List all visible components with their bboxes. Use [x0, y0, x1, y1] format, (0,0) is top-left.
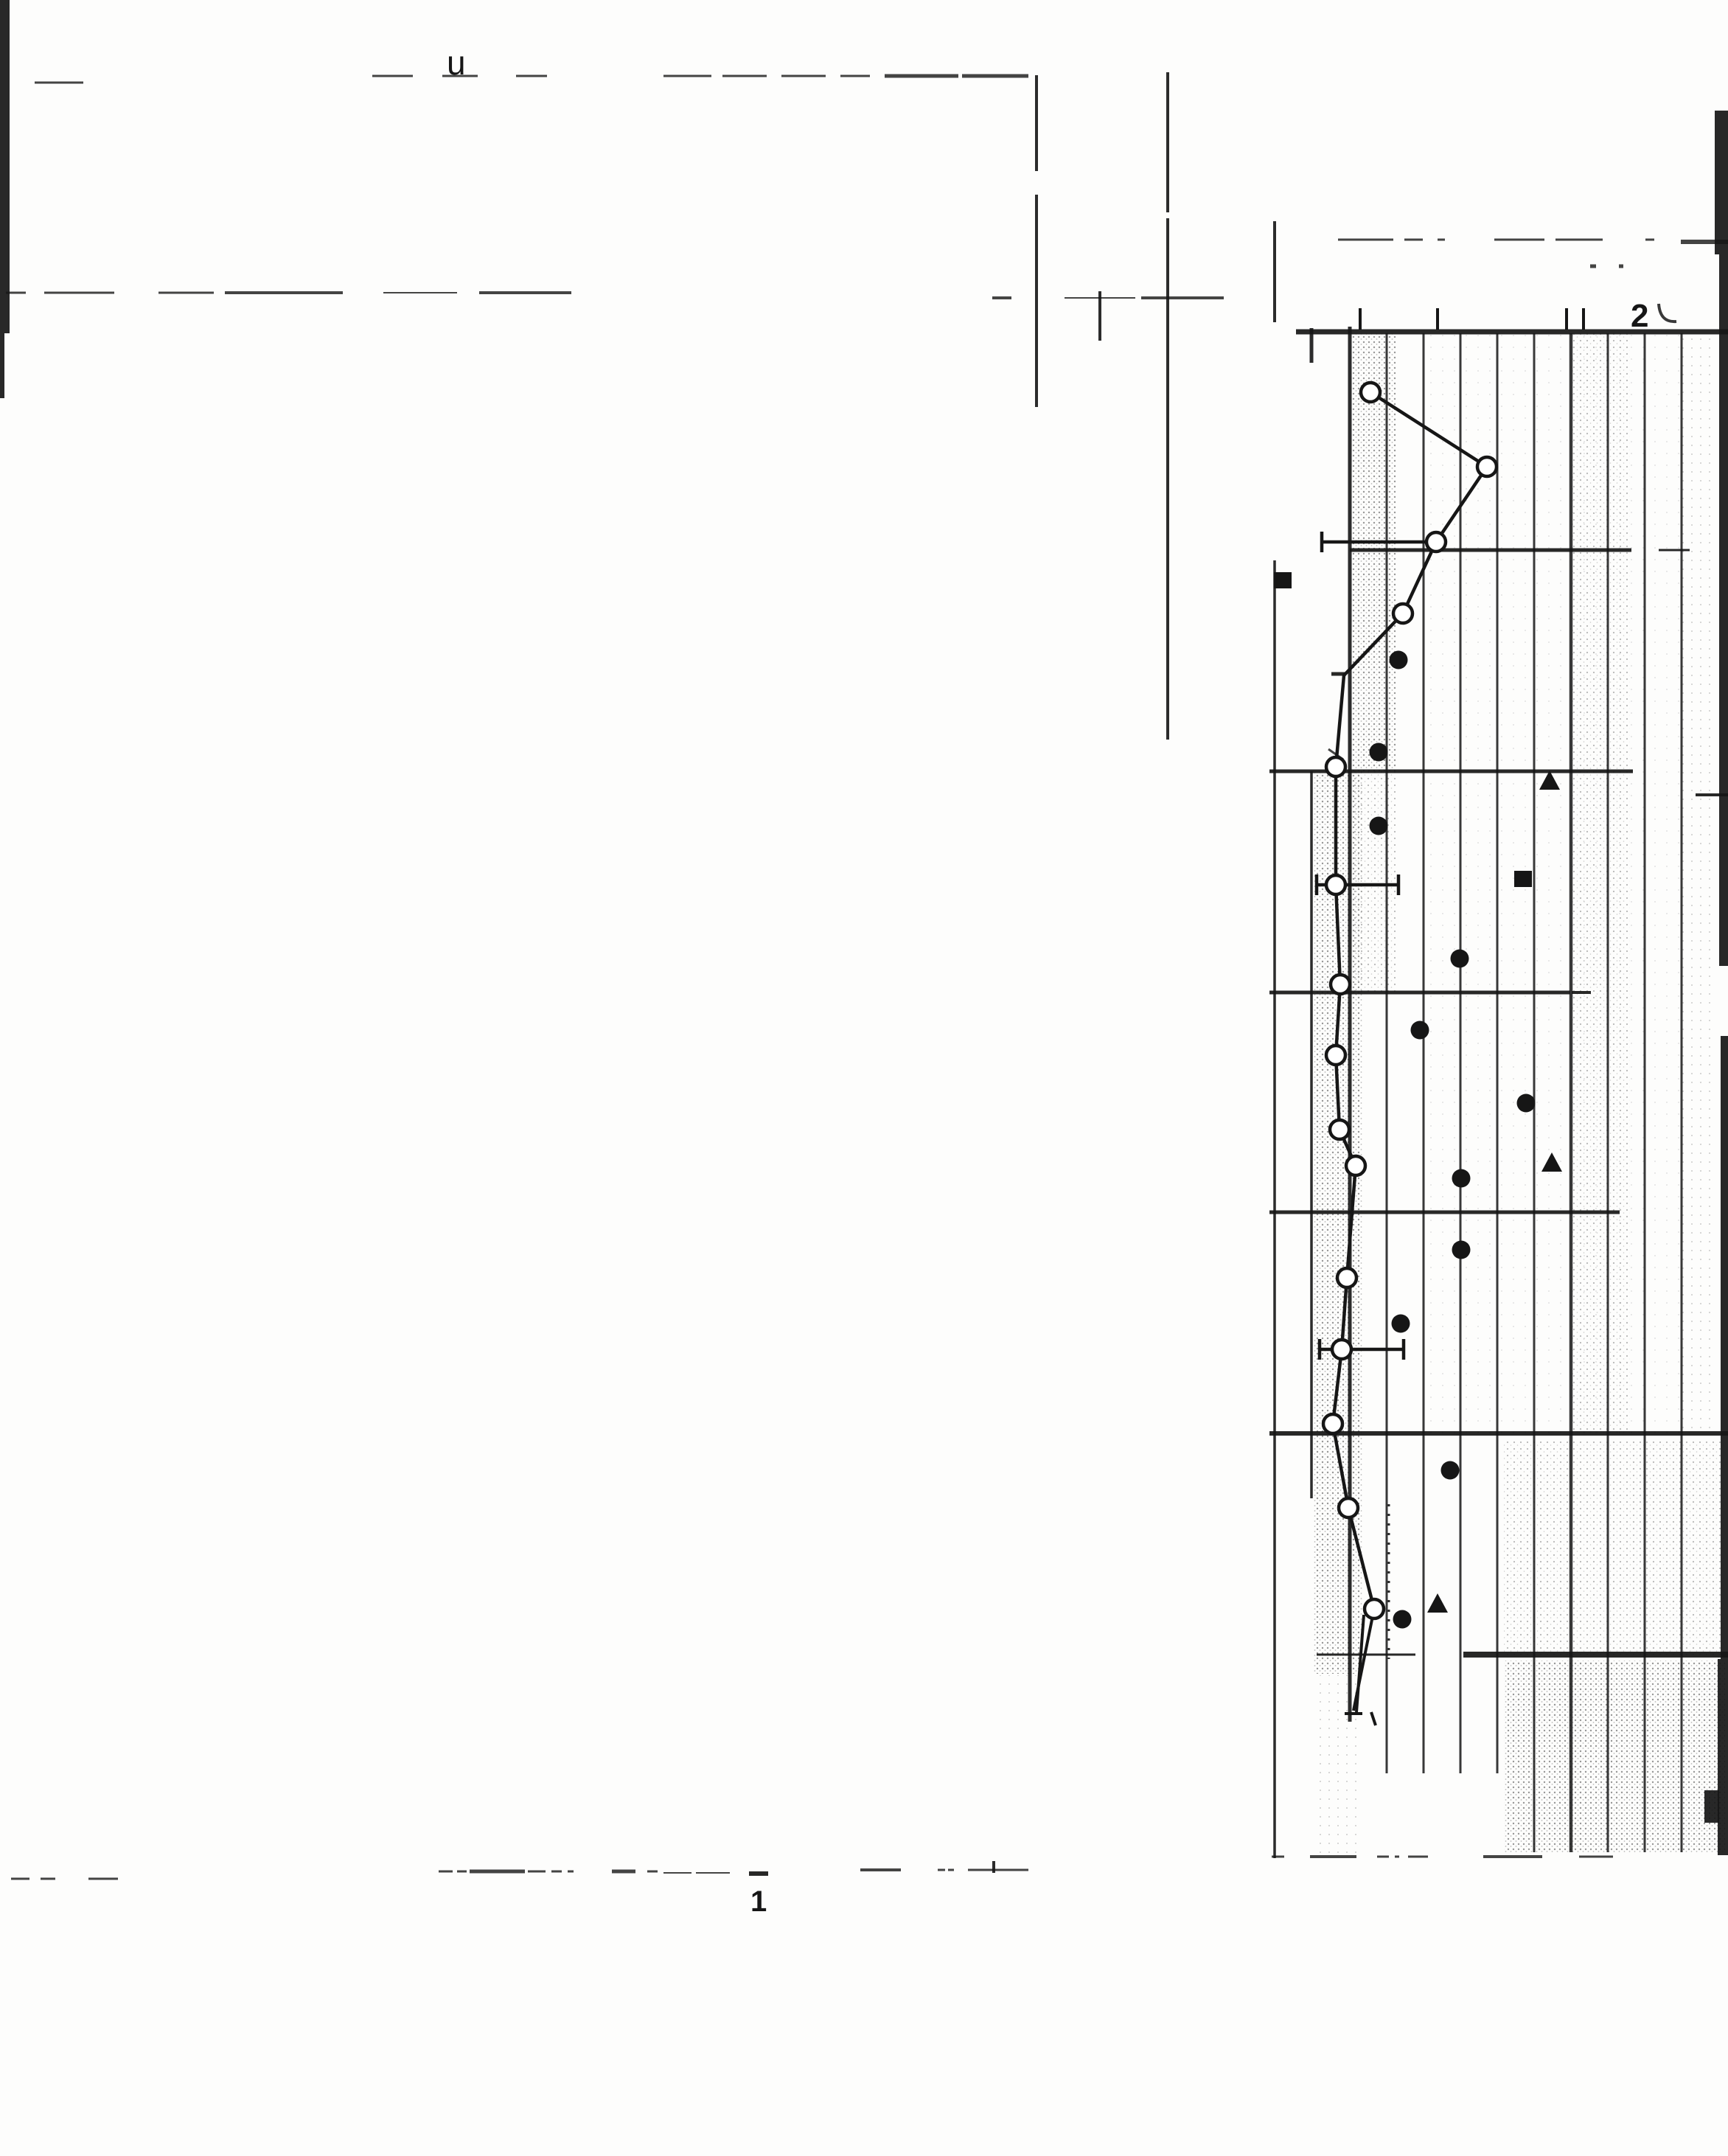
filled-square-marker	[1274, 572, 1292, 588]
open-circle-marker	[1332, 1340, 1351, 1359]
page-number-label: 1	[750, 1885, 767, 1918]
filled-circle-marker	[1370, 817, 1388, 835]
filled-circle-marker	[1390, 651, 1408, 670]
profile-tail-line	[1371, 1712, 1376, 1725]
filled-square-marker	[1514, 871, 1532, 887]
edge-bar	[1718, 1659, 1728, 1855]
filled-triangle-marker	[1427, 1593, 1448, 1613]
edge-bar	[1704, 1790, 1719, 1823]
open-circle-marker	[1337, 1268, 1356, 1287]
open-circle-marker	[1339, 1498, 1358, 1517]
stipple-patch	[1504, 1661, 1725, 1852]
filled-circle-marker	[1393, 1610, 1412, 1629]
curve-after-axis-label	[1659, 304, 1676, 321]
open-circle-marker	[1326, 1046, 1345, 1065]
open-circle-marker	[1326, 875, 1345, 894]
open-circle-marker	[1330, 1120, 1349, 1139]
edge-bar	[0, 0, 10, 333]
edge-bar	[0, 333, 4, 398]
stipple-shading	[1314, 333, 1725, 1857]
open-circle-marker	[1426, 532, 1446, 552]
scan-figure: u 2 1	[0, 0, 1728, 2156]
edge-bar	[1715, 111, 1728, 254]
open-circle-marker	[1331, 975, 1350, 994]
top-axis-ticks	[1360, 308, 1584, 330]
open-circle-marker	[1361, 383, 1380, 402]
filled-circle-marker	[1517, 1094, 1536, 1113]
edge-bar	[1719, 254, 1728, 966]
edge-bar	[1721, 1036, 1728, 1659]
filled-circle-marker	[1441, 1461, 1460, 1480]
filled-circle-marker	[1392, 1315, 1410, 1333]
filled-circle-marker	[1411, 1021, 1429, 1040]
open-circle-marker	[1393, 604, 1412, 623]
stipple-patch	[1504, 1439, 1725, 1655]
open-circle-marker	[1326, 757, 1345, 776]
open-circle-marker	[1323, 1414, 1342, 1433]
filled-circle-marker	[1452, 1169, 1471, 1188]
open-circle-marker	[1365, 1599, 1384, 1618]
filled-circle-marker	[1452, 1241, 1471, 1259]
x-axis-tick-label: 2	[1631, 298, 1648, 334]
filled-circle-marker	[1370, 743, 1388, 762]
scanned-page: u 2 1	[0, 0, 1728, 2156]
handwritten-letter-u: u	[447, 44, 466, 82]
open-circle-marker	[1477, 457, 1497, 476]
open-circle-marker	[1346, 1156, 1365, 1175]
filled-circle-marker	[1451, 950, 1469, 968]
stipple-patch	[1682, 333, 1718, 1433]
